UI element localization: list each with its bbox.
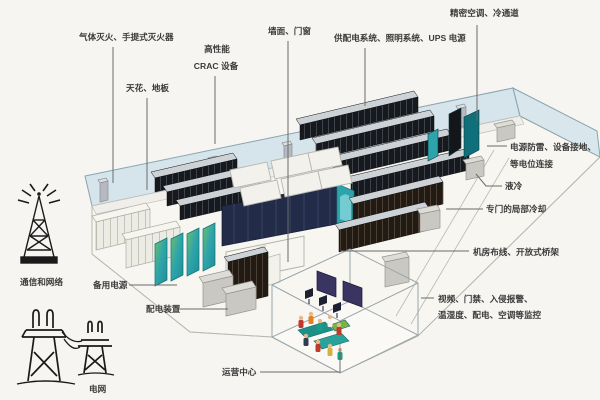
gray-box [417,205,440,232]
teal-panel-small [428,129,438,161]
label-comm-network-text: 通信和网络 [20,276,63,287]
label-crac-line1: 高性能 [204,43,230,54]
person [337,323,342,335]
label-wall-door-text: 墙面、门窗 [268,25,311,36]
label-lightning-line2: 等电位连接 [509,158,553,169]
teal-fin [203,223,215,271]
label-monitoring-line1: 视频、门禁、入侵报警、 [438,293,533,304]
label-lightning-line1: 电源防雷、设备接地、 [510,141,596,152]
person [316,340,321,352]
gray-box [463,156,484,180]
label-grid-text: 电网 [89,383,107,394]
label-power-system-text: 供配电系统、照明系统、UPS 电源 [333,32,466,43]
transmission-pylons-icon [17,310,114,384]
black-panel [449,108,461,156]
datacenter-infrastructure-diagram: 气体灭火、手提式灭火器 高性能 CRAC 设备 天花、地板 墙面、门窗 供配电系… [0,0,600,400]
label-ops-center-text: 运营中心 [222,366,257,377]
label-ceiling-floor-text: 天花、地板 [126,82,169,93]
label-monitoring-line2: 温湿度、配电、空调等监控 [438,309,542,320]
label-backup-power-text: 备用电源 [92,279,128,290]
label-liquid-cooling-text: 液冷 [505,180,523,191]
person [328,344,333,356]
label-distribution-text: 配电装置 [146,303,181,314]
label-crac: 高性能 CRAC 设备 [194,43,239,144]
label-local-cooling-text: 专门的局部冷却 [486,203,547,214]
gray-box [494,120,515,142]
gray-box [382,252,409,287]
diagram-canvas: 气体灭火、手提式灭火器 高性能 CRAC 设备 天花、地板 墙面、门窗 供配电系… [0,0,600,400]
person [309,312,314,324]
teal-fin [155,238,167,286]
teal-fin [187,228,199,276]
radio-tower-icon [18,184,60,263]
person [318,319,323,331]
label-fire-text: 气体灭火、手提式灭火器 [78,31,174,42]
person [299,316,304,328]
label-crac-line2: CRAC 设备 [194,60,239,71]
label-cabling-text: 机房布线、开放式桥架 [473,246,559,257]
teal-fin [171,233,183,281]
person [328,315,333,327]
label-grid: 电网 [89,383,107,394]
label-precision-ac-text: 精密空调、冷通道 [450,7,519,18]
person [304,334,309,346]
label-comm-network: 通信和网络 [20,276,63,287]
